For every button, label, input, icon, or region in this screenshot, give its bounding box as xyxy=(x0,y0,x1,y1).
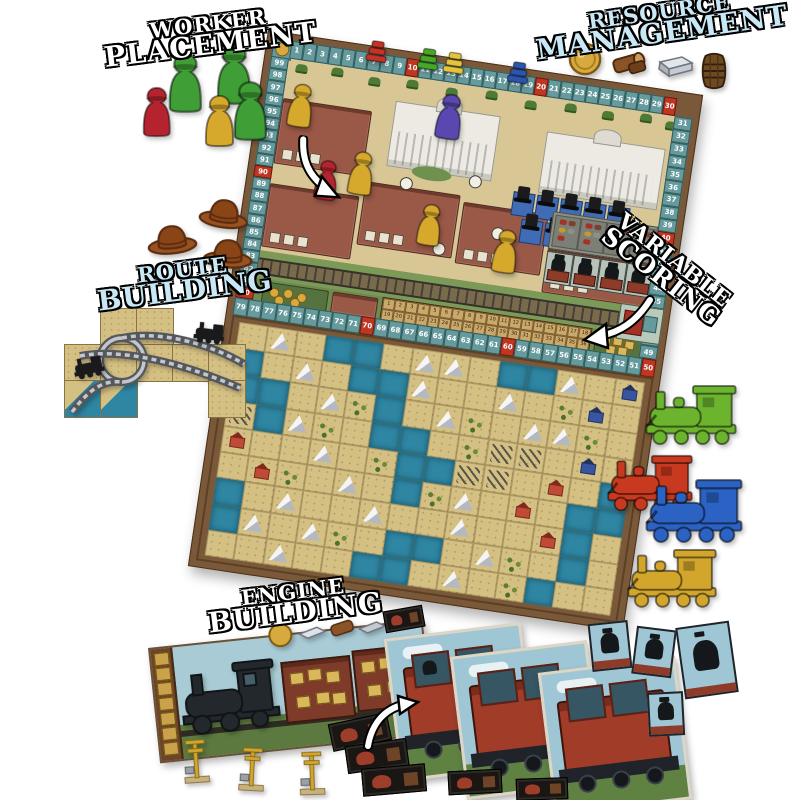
mountain-peak xyxy=(523,422,544,442)
red-settlement xyxy=(540,536,556,549)
train-blue xyxy=(644,478,744,548)
contract-icon xyxy=(584,231,592,237)
mountain-peak xyxy=(295,362,316,382)
map-cell-water xyxy=(523,577,556,607)
mountain-peak xyxy=(301,522,322,542)
board-meeple-yellow xyxy=(411,201,449,249)
action-icon xyxy=(462,248,475,261)
tile-cargo xyxy=(355,750,375,765)
tree-bush xyxy=(406,79,419,90)
brush xyxy=(428,492,434,498)
tile-cargo xyxy=(457,777,473,789)
red-settlement xyxy=(514,505,530,518)
contract-icon xyxy=(557,235,565,241)
engine-track-space xyxy=(158,697,174,711)
barrel-token xyxy=(698,52,730,94)
map-grid xyxy=(205,322,645,616)
blue-settlement xyxy=(621,389,637,402)
contract-icon xyxy=(594,224,602,230)
mountain-peak xyxy=(450,518,471,538)
action-icon xyxy=(269,232,282,245)
yellow-crate xyxy=(332,692,347,705)
tile-bottom-band xyxy=(594,658,631,670)
score-marker-green xyxy=(415,44,442,71)
action-icon xyxy=(282,234,295,247)
car-window xyxy=(477,668,519,706)
train-green xyxy=(644,384,738,450)
passenger-silhouette xyxy=(644,638,664,660)
tree-bush xyxy=(368,76,381,87)
score-marker-red xyxy=(364,37,391,64)
mountain-peak xyxy=(560,375,581,395)
semaphore-signal xyxy=(235,741,270,797)
passenger-silhouette xyxy=(422,660,438,676)
yellow-crate xyxy=(316,691,331,704)
worker-meeple-yellow xyxy=(200,94,239,148)
mountain-peak xyxy=(415,353,436,373)
top-hat xyxy=(537,189,557,207)
engine-track-space xyxy=(161,726,177,740)
mountain-peak xyxy=(498,392,519,412)
tree-bush xyxy=(331,67,344,78)
top-hat xyxy=(521,213,541,231)
passenger-tile xyxy=(675,621,738,700)
tree-bush xyxy=(601,110,614,121)
contract-icon xyxy=(558,227,566,233)
engine-card-arrow xyxy=(358,694,422,752)
board-meeple-yellow xyxy=(281,80,321,130)
tree-bush xyxy=(524,100,537,111)
red-settlement xyxy=(547,484,563,497)
train-car-art xyxy=(573,273,596,287)
semaphore-signal xyxy=(178,733,214,789)
brush xyxy=(503,583,509,589)
passenger-tile xyxy=(588,620,633,672)
tile-cargo xyxy=(390,614,403,626)
car-window xyxy=(565,684,607,722)
yellow-crate xyxy=(307,668,322,681)
tile-cargo xyxy=(550,783,561,793)
mountain-peak xyxy=(475,548,496,568)
passenger-silhouette xyxy=(599,632,619,654)
map-cell-desert xyxy=(581,586,614,616)
mountain-peak xyxy=(321,392,342,412)
mountain-peak xyxy=(454,492,475,512)
mountain-peak xyxy=(288,414,309,434)
train-car-tile xyxy=(516,777,569,800)
red-settlement xyxy=(229,436,245,449)
yellow-crate xyxy=(289,672,304,685)
contract-icon xyxy=(567,229,575,235)
mountain-peak xyxy=(363,505,384,525)
mountain-peak xyxy=(436,409,457,429)
tile-cargo xyxy=(524,784,539,795)
train-car-tile xyxy=(361,763,427,796)
action-icon xyxy=(378,232,391,245)
semaphore-signal xyxy=(295,745,329,800)
tile-cargo xyxy=(339,726,359,742)
contract-icon xyxy=(583,239,591,245)
mountain-peak xyxy=(243,513,264,533)
cowboy-hat xyxy=(194,192,255,237)
capitol-dome xyxy=(593,127,623,147)
train-yellow xyxy=(626,548,718,613)
engine-track-space xyxy=(157,682,173,696)
mountain-peak xyxy=(338,474,359,494)
top-hat xyxy=(561,192,581,210)
board-game-product-photo: 1234567891011121314151617181920212223242… xyxy=(0,0,800,800)
contract-icon xyxy=(559,219,567,225)
mountain-peak xyxy=(442,569,463,589)
red-settlement xyxy=(254,467,270,480)
tile-cargo xyxy=(372,774,392,789)
blue-settlement xyxy=(588,410,604,423)
score-marker-blue xyxy=(505,58,532,85)
mountain-peak xyxy=(270,332,291,352)
train-car-art xyxy=(600,277,623,291)
score-marker-yellow xyxy=(441,48,468,75)
brush xyxy=(333,531,339,537)
engine-track-space xyxy=(163,741,179,755)
map-cell-mountain xyxy=(436,564,469,594)
brush xyxy=(584,436,590,442)
worker-meeple-red xyxy=(138,86,175,138)
engine-track-space xyxy=(155,667,171,681)
board-meeple-purple xyxy=(429,90,470,143)
contract-icon xyxy=(568,221,576,227)
board-arrow xyxy=(284,134,353,206)
action-icon xyxy=(392,234,405,247)
passenger-silhouette-hat xyxy=(694,632,705,638)
mountain-peak xyxy=(313,444,334,464)
brush xyxy=(464,444,470,450)
brush xyxy=(352,401,358,407)
train-car-tile xyxy=(447,769,502,796)
yellow-crate xyxy=(325,670,340,683)
car-window xyxy=(411,650,453,688)
black-locomotive-token xyxy=(191,320,228,349)
action-icon xyxy=(296,236,309,249)
board-meeple-yellow xyxy=(486,226,526,276)
mountain-peak xyxy=(411,379,432,399)
tree-bush xyxy=(564,103,577,114)
map-cell-desert xyxy=(205,529,238,559)
yellow-crate xyxy=(361,660,376,673)
mountain-peak xyxy=(268,543,289,563)
mountain-peak xyxy=(552,427,573,447)
mountain-peak xyxy=(276,492,297,512)
action-icon xyxy=(364,230,377,243)
contract-icon xyxy=(585,223,593,229)
tile-bottom-band xyxy=(686,682,737,697)
engine-track-space xyxy=(154,652,170,666)
map-cell-brush xyxy=(494,573,527,603)
engine-track-space xyxy=(160,712,176,726)
freight-car xyxy=(280,655,356,724)
tree-bush xyxy=(485,90,498,101)
map-cell-desert xyxy=(552,581,585,611)
tile-cargo xyxy=(409,612,419,623)
car-window xyxy=(609,679,651,717)
tree-bush xyxy=(639,113,652,124)
passenger-silhouette xyxy=(657,702,674,721)
top-hat xyxy=(585,196,605,214)
passenger-silhouette xyxy=(691,638,720,672)
mountain-peak xyxy=(444,358,465,378)
map-cell-desert xyxy=(234,534,267,564)
brush xyxy=(320,423,326,429)
brush xyxy=(283,470,289,476)
top-hat xyxy=(513,185,533,203)
brush xyxy=(559,405,565,411)
brush xyxy=(507,557,513,563)
tile-cargo xyxy=(483,775,495,787)
tile-bottom-band xyxy=(633,664,670,676)
score-cell-50: 50 xyxy=(640,358,657,378)
passenger-tile xyxy=(647,691,685,737)
map-cell-desert xyxy=(292,542,325,572)
yellow-crate xyxy=(296,695,311,708)
blue-settlement xyxy=(580,462,596,475)
tile-cargo xyxy=(403,771,418,785)
tree-bush xyxy=(295,64,308,75)
map-cell-mountain xyxy=(263,538,296,568)
brush xyxy=(468,418,474,424)
steel-ingot-token xyxy=(652,50,696,86)
player-locomotive xyxy=(176,655,283,741)
passenger-tile xyxy=(631,626,677,679)
tile-bottom-band xyxy=(651,725,683,735)
train-car-art xyxy=(546,269,569,283)
brush xyxy=(374,457,380,463)
variable-scoring-arrow xyxy=(576,292,660,354)
score-cell-30: 30 xyxy=(662,96,678,116)
map-cell-desert xyxy=(465,568,498,598)
